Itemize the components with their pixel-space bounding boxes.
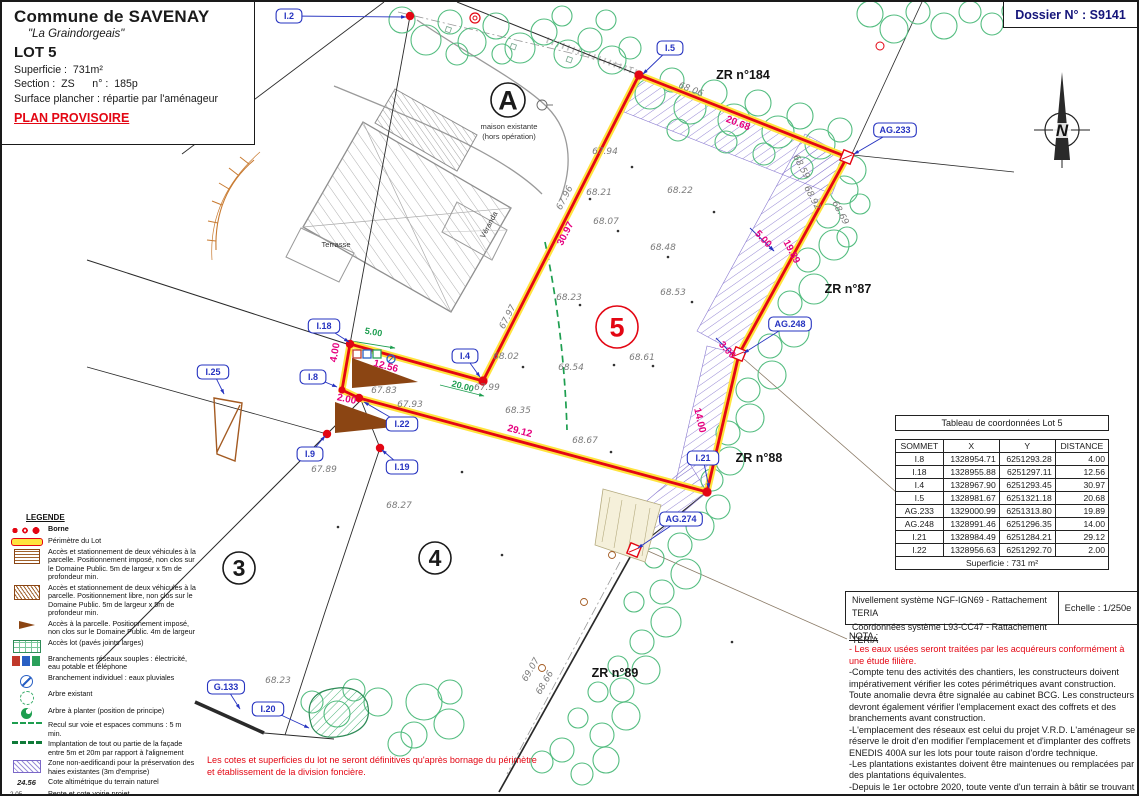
legend-item: Arbre à planter (position de principe): [10, 707, 196, 719]
legend-symbol-cote: 24.56: [17, 779, 36, 788]
elevation-label: 68.27: [386, 501, 412, 511]
svg-text:I.19: I.19: [394, 462, 409, 472]
svg-text:I.21: I.21: [695, 453, 710, 463]
table-cell: 1329000.99: [943, 505, 999, 518]
table-row: I.51328981.676251321.1820.68: [896, 492, 1109, 505]
nota-title: NOTA :: [849, 631, 1137, 642]
vertex-label-I.25: I.25: [197, 365, 228, 394]
elevation-label: 67.94: [592, 147, 618, 157]
legend-item: Accès lot (pavés joints larges): [10, 639, 196, 653]
legend-symbol-acc1: [14, 549, 40, 564]
terrain-point: [731, 641, 734, 644]
terrain-point: [667, 256, 670, 259]
table-header: DISTANCE: [1055, 440, 1108, 453]
annotation-label: Terrasse: [321, 240, 350, 249]
nota-block: NOTA : - Les eaux usées seront traitées …: [849, 631, 1137, 796]
talus-slope: [207, 152, 260, 260]
plan-page: 67.9468.2168.0768.2268.4868.5368.2368.02…: [0, 0, 1139, 796]
terrain-point: [631, 166, 634, 169]
legend-symbol-pluvial: [20, 675, 33, 688]
legend-symbol-reseaux: [12, 656, 42, 666]
parcel-label: ZR n°89: [592, 666, 639, 680]
table-cell: 1328991.46: [943, 518, 999, 531]
legend-item-label: Pente et cote voirie projet: [48, 790, 196, 796]
elevation-label: 68.54: [558, 363, 584, 373]
legend-symbol-acc3: [19, 621, 35, 629]
elevation-label: 68.22: [667, 186, 693, 196]
legend-item-label: Borne: [48, 525, 196, 533]
terrain-point: [337, 526, 340, 529]
legend-symbol-paves: [13, 640, 41, 653]
table-row: I.41328967.906251293.4530.97: [896, 479, 1109, 492]
legend-item-label: Branchements réseaux souples : électrici…: [48, 655, 196, 672]
commune-title: Commune de SAVENAY: [14, 7, 244, 27]
legend-symbol-implant: [12, 741, 42, 744]
table-cell: 1328984.49: [943, 531, 999, 544]
legend-symbol-arbre-ex: [20, 691, 34, 705]
annotation-label: maison existante: [481, 122, 538, 131]
legend-item: Accès et stationnement de deux véhicules…: [10, 548, 196, 582]
elevation-label: 68.66: [534, 669, 556, 697]
terrain-point: [713, 211, 716, 214]
table-row: AG.2481328991.466251296.3514.00: [896, 518, 1109, 531]
nota-lines: - Les eaux usées seront traitées par les…: [849, 644, 1137, 796]
table-cell: 4.00: [1055, 453, 1108, 466]
svg-text:N: N: [1056, 121, 1069, 140]
terrain-point: [589, 198, 592, 201]
parking-symbol: [214, 398, 242, 461]
legend-item-label: Recul sur voie et espaces communs : 5 m …: [48, 721, 196, 738]
hedge-blob: [309, 688, 368, 738]
lot-title: LOT 5: [14, 44, 244, 61]
elevation-label: 67.89: [311, 465, 337, 475]
lot-number-circles: 5A34: [223, 83, 638, 584]
table-cell: 14.00: [1055, 518, 1108, 531]
svg-text:3: 3: [233, 555, 246, 581]
table-header: Y: [999, 440, 1055, 453]
lot-number-A: A: [491, 83, 525, 117]
legend-item: Borne: [10, 525, 196, 535]
elevation-label: 68.61: [629, 353, 655, 363]
legend-item-label: Accès et stationnement de deux véhicules…: [48, 548, 196, 582]
dimension-label: 4.00: [328, 342, 342, 364]
legend-item: Branchements réseaux souples : électrici…: [10, 655, 196, 672]
parcel-label: ZR n°88: [736, 451, 783, 465]
legend-item: Accès à la parcelle. Positionnement impo…: [10, 620, 196, 637]
terrain-point: [652, 365, 655, 368]
nota-line: -Compte tenu des activités des chantiers…: [849, 667, 1137, 724]
table-cell: 6251296.35: [999, 518, 1055, 531]
table-cell: 29.12: [1055, 531, 1108, 544]
legend-item-label: Accès lot (pavés joints larges): [48, 639, 196, 647]
table-cell: 30.97: [1055, 479, 1108, 492]
legend-item: Accès et stationnement de deux véhicules…: [10, 584, 196, 618]
terrain-point: [617, 230, 620, 233]
table-row: I.211328984.496251284.2129.12: [896, 531, 1109, 544]
legend-symbol-borne: [10, 526, 43, 535]
legend-item-label: Cote altimétrique du terrain naturel: [48, 778, 196, 786]
table-cell: AG.248: [896, 518, 944, 531]
north-arrow: N: [1034, 72, 1090, 168]
svg-text:AG.233: AG.233: [879, 125, 910, 135]
legend: LEGENDE BornePérimètre du LotAccès et st…: [10, 513, 196, 796]
nota-line: -L'emplacement des réseaux est celui du …: [849, 725, 1137, 759]
legend-symbol-perim: [11, 538, 43, 546]
terrain-point: [579, 304, 582, 307]
svg-text:I.9: I.9: [305, 449, 315, 459]
title-block: Commune de SAVENAY "La Graindorgeais" LO…: [2, 2, 255, 145]
elevation-label: 68.23: [556, 293, 582, 303]
legend-title: LEGENDE: [26, 513, 196, 522]
table-row: AG.2331329000.996251313.8019.89: [896, 505, 1109, 518]
coordinates-table: SOMMETXYDISTANCE I.81328954.716251293.28…: [895, 439, 1109, 570]
annotation-label: (hors opération): [482, 132, 536, 141]
vertex-labels: I.2I.5AG.233AG.248I.18I.4I.8I.22I.9I.19I…: [197, 9, 916, 728]
svg-text:I.18: I.18: [316, 321, 331, 331]
table-row: I.81328954.716251293.284.00: [896, 453, 1109, 466]
elevation-label: 68.48: [650, 243, 676, 253]
terrain-point: [522, 366, 525, 369]
legend-item-label: Arbre existant: [48, 690, 196, 698]
legend-symbol-recul: [12, 722, 42, 724]
elevation-label: 68.21: [586, 188, 612, 198]
table-cell: I.18: [896, 466, 944, 479]
vertex-label-AG.233: AG.233: [854, 123, 916, 154]
table-cell: 2.00: [1055, 544, 1108, 557]
table-row: I.181328955.886251297.1112.56: [896, 466, 1109, 479]
table-cell: I.5: [896, 492, 944, 505]
survey-disclaimer: Les cotes et superficies du lot ne seron…: [207, 754, 542, 779]
elevation-label: 68.07: [593, 217, 619, 227]
existing-house: [286, 89, 511, 312]
legend-list: BornePérimètre du LotAccès et stationnem…: [10, 525, 196, 796]
legend-item: Branchement individuel : eaux pluviales: [10, 674, 196, 688]
elevation-label: 68.67: [572, 436, 598, 446]
svg-text:AG.274: AG.274: [665, 514, 696, 524]
legend-item-label: Périmètre du Lot: [48, 537, 196, 545]
legend-item-label: Accès et stationnement de deux véhicules…: [48, 584, 196, 618]
legend-item-label: Zone non-aedificandi pour la préservatio…: [48, 759, 196, 776]
legend-symbol-pente: 2.05 → 68.06: [10, 791, 43, 796]
vertex-label-I.2: I.2: [276, 9, 406, 23]
svg-text:4: 4: [429, 545, 442, 571]
legend-item-label: Accès à la parcelle. Positionnement impo…: [48, 620, 196, 637]
table-cell: 1328955.88: [943, 466, 999, 479]
elevation-label: 67.93: [397, 400, 423, 410]
table-cell: 6251321.18: [999, 492, 1055, 505]
legend-item-label: Implantation de tout ou partie de la faç…: [48, 740, 196, 757]
lot-number-3: 3: [223, 552, 255, 584]
legend-symbol-arbre-pl: [21, 708, 32, 719]
svg-text:I.4: I.4: [460, 351, 470, 361]
scale-label: Echelle : 1/250e: [1059, 592, 1137, 624]
table-cell: 20.68: [1055, 492, 1108, 505]
coordinates-table-title: Tableau de coordonnées Lot 5: [895, 415, 1109, 431]
table-area-footer: Superficie : 731 m²: [896, 557, 1109, 570]
place-name: "La Graindorgeais": [28, 28, 244, 40]
table-header: X: [943, 440, 999, 453]
elevation-label: 68.35: [505, 406, 531, 416]
table-cell: 1328954.71: [943, 453, 999, 466]
svg-text:I.8: I.8: [308, 372, 318, 382]
parcel-label: ZR n°87: [825, 282, 872, 296]
svg-text:I.22: I.22: [394, 419, 409, 429]
legend-item: Périmètre du Lot: [10, 537, 196, 546]
table-cell: 1328956.63: [943, 544, 999, 557]
legend-item-label: Arbre à planter (position de principe): [48, 707, 196, 715]
leveling-system: Nivellement système NGF-IGN69 - Rattache…: [852, 594, 1052, 621]
table-cell: 6251297.11: [999, 466, 1055, 479]
legend-item: Implantation de tout ou partie de la faç…: [10, 740, 196, 757]
svg-text:5: 5: [609, 312, 624, 342]
provisional-plan-stamp: PLAN PROVISOIRE: [14, 111, 129, 125]
elevation-label: 67.99: [474, 383, 500, 393]
nota-line: -Depuis le 1er octobre 2020, toute vente…: [849, 782, 1137, 796]
terrain-point: [461, 471, 464, 474]
table-cell: 6251284.21: [999, 531, 1055, 544]
table-cell: 1328981.67: [943, 492, 999, 505]
table-row: I.221328956.636251292.702.00: [896, 544, 1109, 557]
legend-item-label: Branchement individuel : eaux pluviales: [48, 674, 196, 682]
table-cell: I.8: [896, 453, 944, 466]
svg-text:I.25: I.25: [205, 367, 220, 377]
legend-item: Recul sur voie et espaces communs : 5 m …: [10, 721, 196, 738]
vertex-label-G.133: G.133: [208, 680, 245, 709]
green-dimension-label: 5.00: [364, 326, 383, 339]
svg-text:I.5: I.5: [665, 43, 675, 53]
legend-item: 2.05 → 68.06Pente et cote voirie projet: [10, 790, 196, 796]
terrain-point: [610, 451, 613, 454]
table-cell: 6251293.28: [999, 453, 1055, 466]
reference-systems-box: Nivellement système NGF-IGN69 - Rattache…: [845, 591, 1138, 625]
table-cell: 1328967.90: [943, 479, 999, 492]
table-cell: I.4: [896, 479, 944, 492]
legend-item: 24.56Cote altimétrique du terrain nature…: [10, 778, 196, 788]
elevation-label: 68.23: [265, 676, 291, 686]
table-cell: I.22: [896, 544, 944, 557]
elevation-label: 67.83: [371, 386, 397, 396]
table-cell: 6251292.70: [999, 544, 1055, 557]
svg-text:I.20: I.20: [260, 704, 275, 714]
elevation-label: 68.02: [493, 352, 519, 362]
elevation-label: 68.53: [660, 288, 686, 298]
terrain-point: [613, 364, 616, 367]
svg-text:AG.248: AG.248: [774, 319, 805, 329]
vertex-label-I.8: I.8: [300, 370, 337, 387]
coordinates-table-block: Tableau de coordonnées Lot 5 SOMMETXYDIS…: [895, 415, 1109, 570]
lot-section: Section : ZS n° : 185p: [14, 78, 244, 90]
legend-item: Zone non-aedificandi pour la préservatio…: [10, 759, 196, 776]
dossier-number: Dossier N° : S9141: [1003, 2, 1137, 28]
legend-symbol-acc2: [14, 585, 40, 600]
legend-item: Arbre existant: [10, 690, 196, 705]
svg-text:A: A: [498, 85, 518, 115]
svg-text:I.2: I.2: [284, 11, 294, 21]
reference-systems: Nivellement système NGF-IGN69 - Rattache…: [846, 592, 1059, 624]
parcel-label: ZR n°184: [716, 68, 770, 82]
svg-text:G.133: G.133: [214, 682, 239, 692]
table-cell: 6251313.80: [999, 505, 1055, 518]
lot-number-4: 4: [419, 542, 451, 574]
table-cell: 19.89: [1055, 505, 1108, 518]
nota-line: - Les eaux usées seront traitées par les…: [849, 644, 1137, 667]
table-cell: AG.233: [896, 505, 944, 518]
vertex-label-I.19: I.19: [382, 450, 418, 474]
terrain-point: [691, 301, 694, 304]
terrain-point: [501, 554, 504, 557]
table-cell: 12.56: [1055, 466, 1108, 479]
table-header: SOMMET: [896, 440, 944, 453]
lot-number-5: 5: [596, 306, 638, 348]
legend-symbol-zone: [13, 760, 41, 773]
table-cell: 6251293.45: [999, 479, 1055, 492]
lot-area: Superficie : 731m²: [14, 64, 244, 76]
floor-area-note: Surface plancher : répartie par l'aménag…: [14, 93, 244, 105]
nota-line: -Les plantations existantes doivent être…: [849, 759, 1137, 782]
table-cell: I.21: [896, 531, 944, 544]
vertex-label-I.20: I.20: [252, 702, 309, 728]
